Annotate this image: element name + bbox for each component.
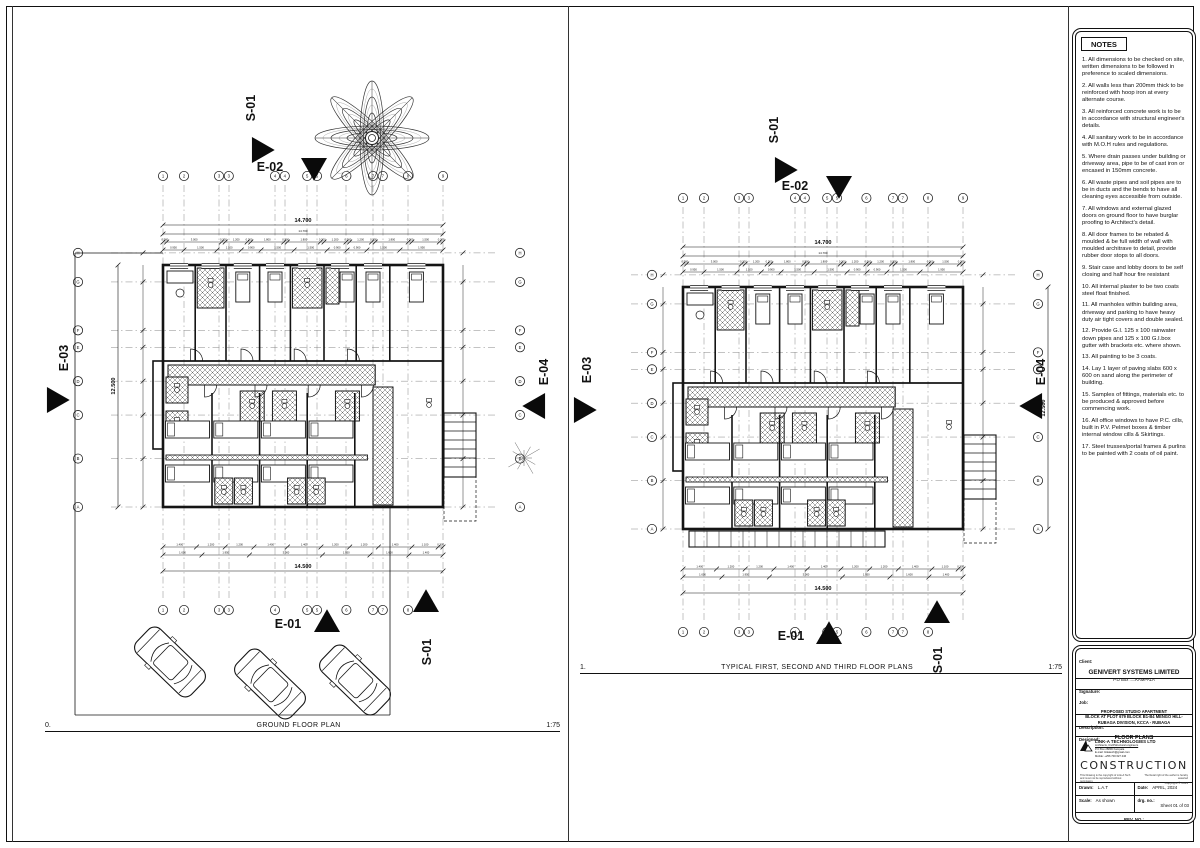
rev-label: REV. NO.:	[1124, 817, 1144, 822]
svg-text:1.200: 1.200	[207, 543, 214, 547]
drawing-number-cell: drg. no.: Sheet 01 of 03	[1134, 796, 1193, 812]
svg-text:1.500: 1.500	[197, 246, 204, 250]
svg-text:1.950: 1.950	[418, 246, 425, 250]
drawn-value: L.A.T	[1098, 785, 1109, 790]
svg-text:1.800: 1.800	[301, 238, 308, 242]
svg-text:1.950: 1.950	[863, 573, 870, 577]
scale-drg-row: Scale: As shown drg. no.: Sheet 01 of 03	[1076, 796, 1192, 813]
svg-text:1.600: 1.600	[179, 551, 186, 555]
svg-text:0.900: 0.900	[354, 246, 361, 250]
svg-text:E: E	[651, 367, 654, 372]
svg-text:C: C	[650, 435, 653, 440]
svg-text:1.200: 1.200	[357, 238, 364, 242]
note-item: 15. Samples of fittings, materials etc. …	[1082, 392, 1186, 413]
svg-text:E-03: E-03	[580, 357, 594, 383]
revision-row: REV. NO.:	[1076, 813, 1192, 821]
svg-text:B: B	[1037, 478, 1040, 483]
svg-text:1.400: 1.400	[392, 543, 399, 547]
svg-text:1.600: 1.600	[699, 573, 706, 577]
svg-text:A: A	[77, 505, 80, 510]
svg-text:1.800: 1.800	[388, 238, 395, 242]
note-item: 14. Lay 1 layer of paving slabs 600 x 60…	[1082, 366, 1186, 387]
svg-text:S-01: S-01	[420, 639, 434, 665]
construction-wordmark: CONSTRUCTION	[1079, 759, 1189, 772]
svg-text:1.400: 1.400	[787, 565, 794, 569]
svg-text:1.500: 1.500	[380, 246, 387, 250]
client-name: GENIVERT SYSTEMS LIMITED	[1079, 669, 1189, 676]
svg-text:E-02: E-02	[257, 160, 283, 174]
building	[673, 285, 996, 543]
caption-number: 0.	[45, 722, 51, 729]
note-item: 12. Provide G.I. 125 x 100 rainwater dow…	[1082, 328, 1186, 349]
svg-text:1.100: 1.100	[942, 565, 949, 569]
balcony	[689, 531, 885, 547]
svg-text:1.100: 1.100	[226, 246, 233, 250]
svg-text:1.100: 1.100	[422, 543, 429, 547]
svg-text:H: H	[650, 273, 653, 278]
scale-label: Scale:	[1079, 798, 1092, 803]
caption-scale: 1:75	[1048, 664, 1062, 671]
svg-text:1.950: 1.950	[343, 551, 350, 555]
drawing-sheet: 123344556778912334556778HHGGFFEEDDCCBBAA…	[0, 0, 1200, 848]
svg-text:1.500: 1.500	[942, 260, 949, 264]
firm-contact-lines: Architects, Civil/Structural engineersP.…	[1095, 744, 1156, 758]
caption-title: GROUND FLOOR PLAN	[257, 722, 341, 729]
svg-text:D: D	[518, 379, 521, 384]
svg-text:14.500: 14.500	[814, 586, 831, 592]
svg-text:1.400: 1.400	[176, 543, 183, 547]
svg-text:F: F	[1037, 350, 1040, 355]
svg-text:1.500: 1.500	[827, 268, 834, 272]
description-row: Description: FLOOR PLANS	[1076, 715, 1192, 727]
svg-text:E: E	[519, 345, 522, 350]
parked-cars	[129, 621, 396, 725]
note-item: 17. Steel trusses/portal frames & purlin…	[1082, 444, 1186, 458]
title-block: Client: GENIVERT SYSTEMS LIMITED P.O Box…	[1072, 645, 1196, 824]
note-item: 6. All waste pipes and soil pipes are to…	[1082, 180, 1186, 201]
svg-text:S-01: S-01	[767, 117, 781, 143]
caption-scale: 1:75	[546, 722, 560, 729]
caption-title: TYPICAL FIRST, SECOND AND THIRD FLOOR PL…	[721, 664, 913, 671]
svg-text:1.200: 1.200	[361, 543, 368, 547]
compass-flower-ornament	[315, 81, 429, 195]
svg-text:14.700: 14.700	[818, 251, 828, 255]
svg-text:0.900: 0.900	[874, 268, 881, 272]
svg-text:14.700: 14.700	[294, 218, 311, 224]
svg-text:G: G	[1036, 302, 1039, 307]
svg-text:S-01: S-01	[244, 95, 258, 121]
svg-text:E-04: E-04	[537, 359, 551, 385]
svg-text:C: C	[1036, 435, 1039, 440]
grid-lines: 123344556778912334556778HHGGFFEEDDCCBBAA	[73, 171, 524, 614]
signature-row: Signature:	[1076, 679, 1192, 690]
svg-text:0.950: 0.950	[690, 268, 697, 272]
moral-right-text: The literal right of the author is hereb…	[1134, 774, 1188, 780]
firm-identity: LINK-A TECHNOLOGIES LTD Architects, Civi…	[1079, 738, 1189, 758]
svg-text:14.700: 14.700	[814, 240, 831, 246]
notes-panel: NOTES 1. All dimensions to be checked on…	[1072, 28, 1196, 642]
notes-panel-inner: NOTES 1. All dimensions to be checked on…	[1075, 31, 1193, 639]
svg-text:B: B	[651, 478, 654, 483]
svg-text:3.000: 3.000	[711, 260, 718, 264]
svg-text:14.500: 14.500	[294, 564, 311, 570]
svg-text:G: G	[650, 302, 653, 307]
svg-text:C: C	[518, 413, 521, 418]
svg-text:A: A	[651, 527, 654, 532]
svg-text:G: G	[76, 280, 79, 285]
svg-text:1.400: 1.400	[423, 551, 430, 555]
svg-text:H: H	[1036, 273, 1039, 278]
svg-text:E-01: E-01	[275, 617, 301, 631]
svg-text:1.800: 1.800	[784, 260, 791, 264]
note-item: 3. All reinforced concrete work is to be…	[1082, 109, 1186, 130]
job-label: Job:	[1079, 700, 1088, 705]
date-label: Date:	[1138, 785, 1149, 790]
svg-text:3.000: 3.000	[803, 573, 810, 577]
svg-text:1.200: 1.200	[727, 565, 734, 569]
note-item: 13. All painting to be 3 coats.	[1082, 354, 1186, 361]
svg-text:0.900: 0.900	[768, 268, 775, 272]
svg-text:H: H	[518, 251, 521, 256]
svg-text:1.800: 1.800	[908, 260, 915, 264]
svg-text:3.000: 3.000	[191, 238, 198, 242]
svg-text:12.500: 12.500	[111, 377, 117, 394]
drg-label: drg. no.:	[1138, 798, 1155, 803]
svg-text:0.950: 0.950	[170, 246, 177, 250]
svg-text:14.700: 14.700	[298, 229, 308, 233]
svg-text:E: E	[77, 345, 80, 350]
note-item: 11. All manholes within building area, d…	[1082, 302, 1186, 323]
building	[153, 263, 476, 521]
note-item: 8. All door frames to be rebated & mould…	[1082, 232, 1186, 261]
svg-text:1.200: 1.200	[852, 260, 859, 264]
note-item: 10. All internal plaster to be two coats…	[1082, 284, 1186, 298]
svg-text:1.400: 1.400	[696, 565, 703, 569]
svg-text:1.500: 1.500	[307, 246, 314, 250]
svg-text:1.200: 1.200	[756, 565, 763, 569]
svg-text:1.100: 1.100	[746, 268, 753, 272]
svg-text:0.200: 0.200	[957, 565, 964, 569]
client-label: Client:	[1079, 659, 1092, 664]
svg-text:1.950: 1.950	[742, 573, 749, 577]
svg-text:1.200: 1.200	[877, 260, 884, 264]
svg-text:A: A	[519, 505, 522, 510]
svg-text:F: F	[77, 328, 80, 333]
svg-text:1.950: 1.950	[222, 551, 229, 555]
caption-number: 1.	[580, 664, 586, 671]
svg-text:1.200: 1.200	[332, 238, 339, 242]
job-row: Job: PROPOSED STUDIO APARTMENTBLOCK AT P…	[1076, 690, 1192, 715]
svg-text:1.400: 1.400	[943, 573, 950, 577]
svg-text:3.000: 3.000	[283, 551, 290, 555]
svg-text:0.200: 0.200	[437, 543, 444, 547]
drg-value: Sheet 01 of 03	[1160, 803, 1189, 808]
svg-text:B: B	[77, 456, 80, 461]
svg-text:1.500: 1.500	[717, 268, 724, 272]
client-row: Client: GENIVERT SYSTEMS LIMITED P.O Box…	[1076, 649, 1192, 679]
svg-text:1.200: 1.200	[332, 543, 339, 547]
designed-row: Designed:	[1076, 727, 1192, 737]
note-item: 2. All walls less than 200mm thick to be…	[1082, 83, 1186, 104]
date-cell: Date: APRIL, 2024	[1134, 783, 1193, 795]
svg-text:1.500: 1.500	[422, 238, 429, 242]
svg-text:1.800: 1.800	[821, 260, 828, 264]
svg-text:1.200: 1.200	[233, 238, 240, 242]
svg-text:A: A	[1037, 527, 1040, 532]
firm-text: LINK-A TECHNOLOGIES LTD Architects, Civi…	[1095, 739, 1156, 758]
svg-text:C: C	[76, 413, 79, 418]
notes-title: NOTES	[1081, 37, 1127, 51]
svg-text:1.500: 1.500	[794, 268, 801, 272]
typical-floor-plan-drawing: 123344556778912334556778HHGGFFEEDDCCBBAA…	[575, 20, 1072, 670]
svg-text:D: D	[650, 401, 653, 406]
svg-text:F: F	[519, 328, 522, 333]
sheet-inner-border-line	[12, 6, 13, 842]
note-item: 7. All windows and external glazed doors…	[1082, 206, 1186, 227]
svg-text:G: G	[518, 280, 521, 285]
caption-typical-floors: 1. TYPICAL FIRST, SECOND AND THIRD FLOOR…	[580, 664, 1062, 674]
note-item: 5. Where drain passes under building or …	[1082, 154, 1186, 175]
svg-text:1.800: 1.800	[264, 238, 271, 242]
svg-text:1.950: 1.950	[938, 268, 945, 272]
svg-text:1.200: 1.200	[753, 260, 760, 264]
firm-logo-icon	[1079, 739, 1093, 752]
drawn-date-row: Drawn: L.A.T Date: APRIL, 2024	[1076, 783, 1192, 796]
drawn-label: Drawn:	[1079, 785, 1094, 790]
svg-text:0.900: 0.900	[334, 246, 341, 250]
svg-text:1.500: 1.500	[900, 268, 907, 272]
scale-value: As shown	[1096, 798, 1115, 803]
note-item: 9. Stair case and lobby doors to be self…	[1082, 265, 1186, 279]
drawn-cell: Drawn: L.A.T	[1076, 783, 1134, 795]
svg-text:1.200: 1.200	[852, 565, 859, 569]
svg-text:1.500: 1.500	[274, 246, 281, 250]
ground-floor-plan-drawing: 123344556778912334556778HHGGFFEEDDCCBBAA…	[30, 20, 570, 720]
svg-text:1.200: 1.200	[881, 565, 888, 569]
svg-text:1.600: 1.600	[906, 573, 913, 577]
svg-text:E-04: E-04	[1034, 359, 1048, 385]
svg-text:0.900: 0.900	[248, 246, 255, 250]
svg-text:E-02: E-02	[782, 179, 808, 193]
date-value: APRIL, 2024	[1152, 785, 1177, 790]
note-item: 1. All dimensions to be checked on site,…	[1082, 57, 1186, 78]
svg-text:1.400: 1.400	[821, 565, 828, 569]
svg-text:D: D	[76, 379, 79, 384]
svg-text:1.400: 1.400	[301, 543, 308, 547]
note-item: 4. All sanitary work to be in accordance…	[1082, 135, 1186, 149]
svg-text:0.900: 0.900	[854, 268, 861, 272]
svg-text:1.400: 1.400	[912, 565, 919, 569]
scale-cell: Scale: As shown	[1076, 796, 1134, 812]
svg-text:E-01: E-01	[778, 629, 804, 643]
svg-text:E-03: E-03	[57, 345, 71, 371]
note-item: 16. All office windows to have P.C. cill…	[1082, 418, 1186, 439]
notes-list: 1. All dimensions to be checked on site,…	[1076, 55, 1192, 465]
caption-ground-floor: 0. GROUND FLOOR PLAN 1:75	[45, 722, 560, 732]
title-block-inner: Client: GENIVERT SYSTEMS LIMITED P.O Box…	[1075, 648, 1193, 821]
svg-text:F: F	[651, 350, 654, 355]
svg-text:1.400: 1.400	[267, 543, 274, 547]
firm-row: LINK-A TECHNOLOGIES LTD Architects, Civi…	[1076, 737, 1192, 783]
svg-text:1.200: 1.200	[236, 543, 243, 547]
